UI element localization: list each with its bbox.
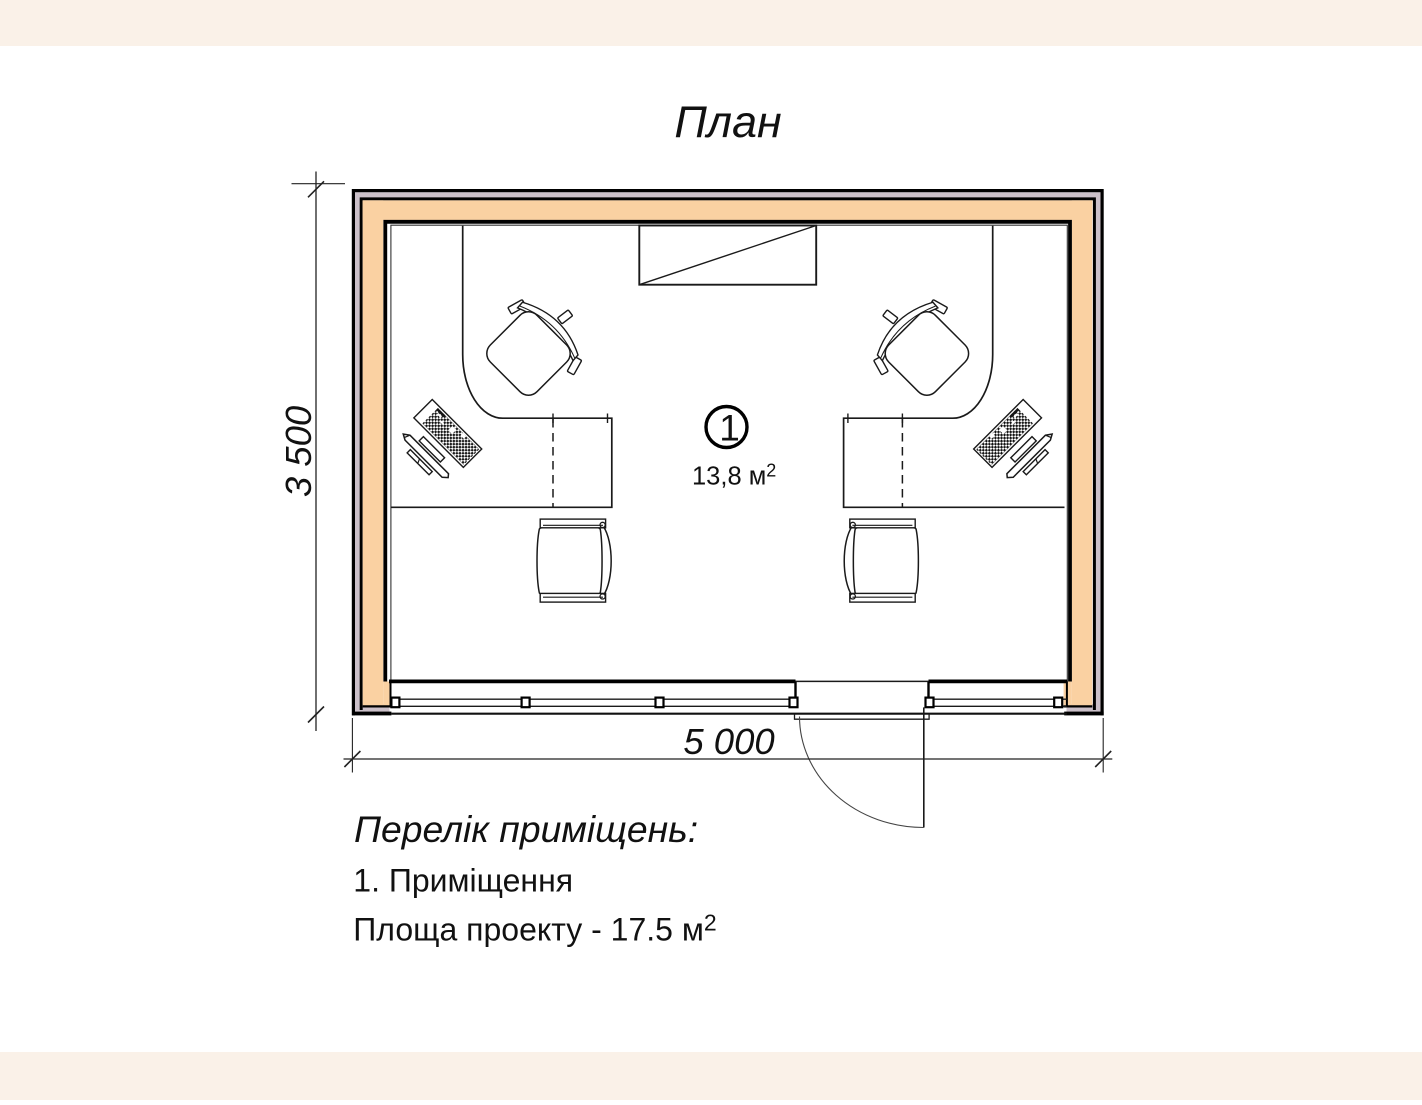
svg-text:План: План bbox=[674, 97, 781, 147]
svg-text:Площа проекту - 17.5 м2: Площа проекту - 17.5 м2 bbox=[353, 910, 716, 948]
svg-text:13,8 м2: 13,8 м2 bbox=[692, 461, 776, 491]
svg-text:3 500: 3 500 bbox=[278, 406, 319, 497]
svg-text:1: 1 bbox=[719, 407, 740, 448]
svg-text:5 000: 5 000 bbox=[683, 721, 774, 762]
svg-text:1. Приміщення: 1. Приміщення bbox=[353, 862, 573, 898]
svg-text:Перелік приміщень:: Перелік приміщень: bbox=[354, 808, 698, 850]
